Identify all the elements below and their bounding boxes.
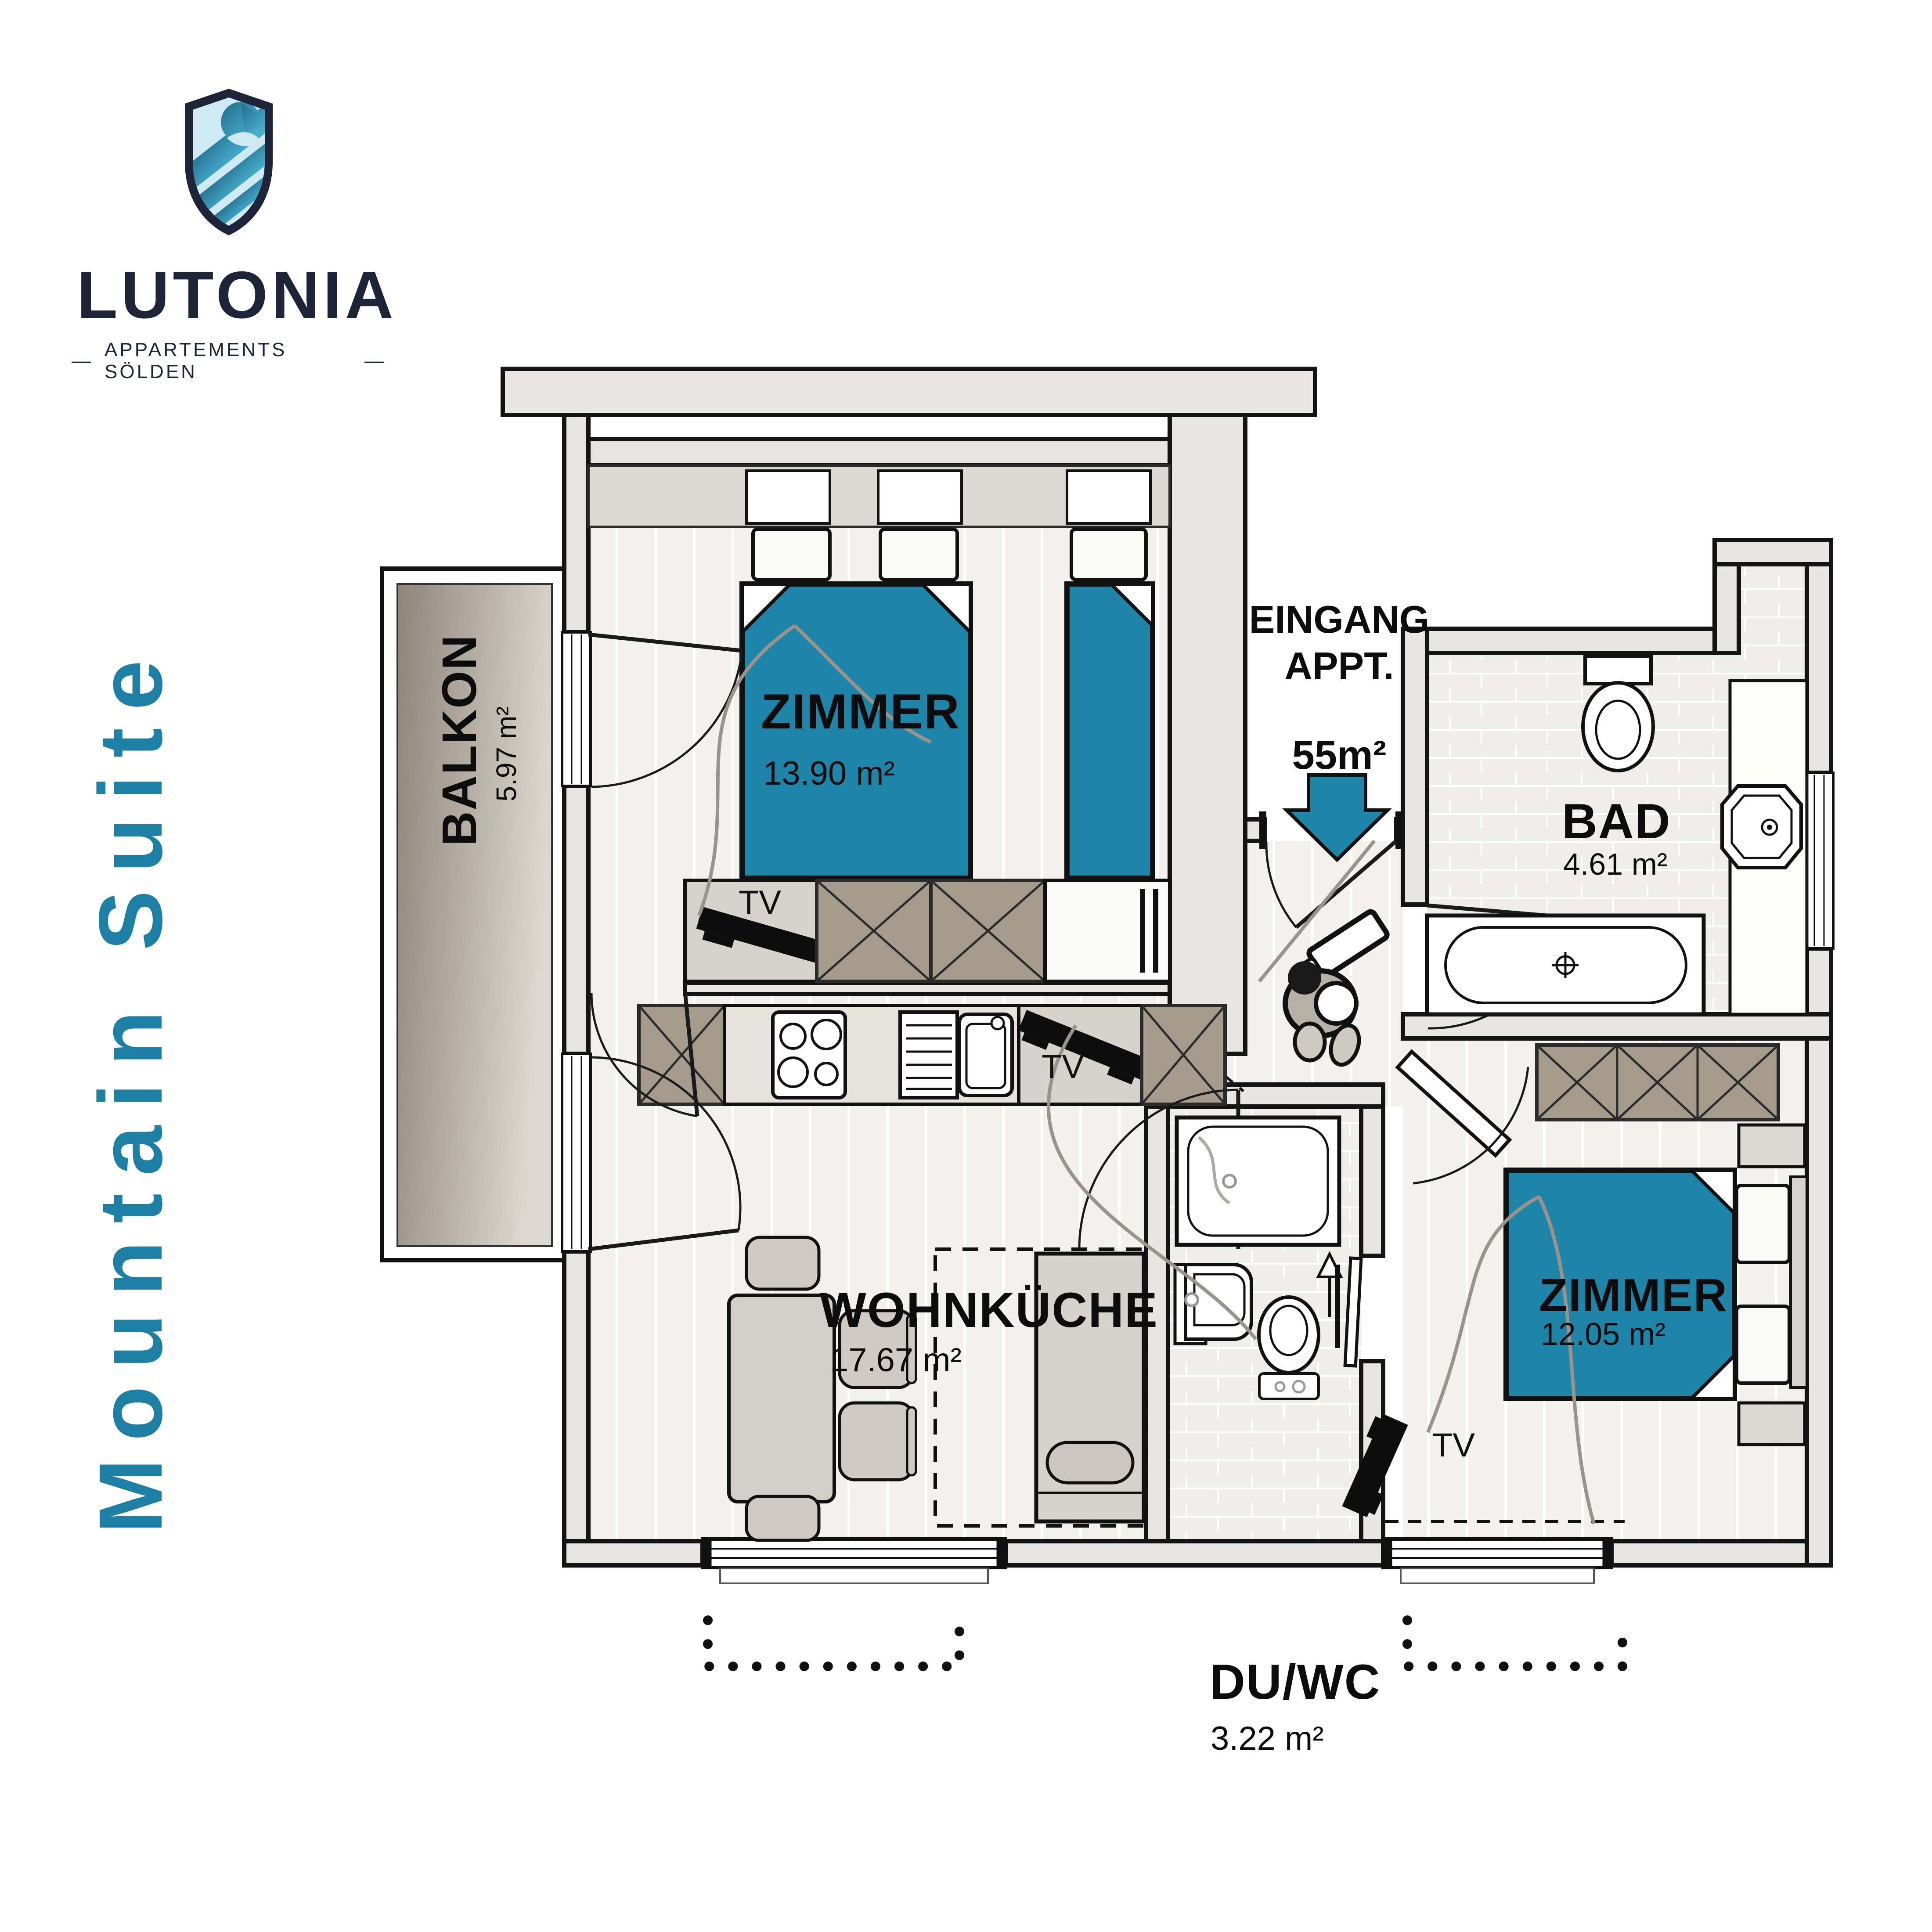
pillow: [1071, 529, 1146, 580]
total-area-label: 55m²: [1238, 732, 1440, 779]
bedroom2-area: 12.05 m²: [1541, 1318, 1665, 1352]
brand-name: LUTONIA: [77, 262, 381, 328]
shelf: [1045, 880, 1170, 981]
railing-dotted: [708, 1620, 1622, 1666]
nightstand: [1739, 1403, 1805, 1445]
bedroom1-name: ZIMMER: [761, 686, 960, 738]
tagline-dash: —: [72, 350, 93, 372]
headboard: [1791, 1177, 1807, 1388]
balcony-name: BALKON: [432, 662, 487, 846]
bedroom2-name: ZIMMER: [1539, 1271, 1728, 1320]
pillow: [1737, 1306, 1789, 1383]
bedroom2-wardrobe: [1537, 1045, 1778, 1120]
shower-wc-name: DU/WC: [1210, 1656, 1381, 1708]
chair: [746, 1496, 819, 1540]
kitchen-row: [639, 1006, 1244, 1104]
balcony-label: BALKON 5.97 m²: [432, 662, 515, 846]
nightstand: [1739, 1125, 1805, 1167]
living-name: WOHNKÜCHE: [820, 1284, 1158, 1336]
toilet-tank: [1585, 656, 1651, 684]
pillow: [880, 529, 957, 580]
brand-tagline: — APPARTEMENTS SÖLDEN —: [72, 339, 386, 383]
dining-table: [729, 1295, 834, 1502]
brand-shield-icon: [175, 86, 282, 238]
floorplan-page: LUTONIA — APPARTEMENTS SÖLDEN — Mountain…: [0, 0, 1932, 1932]
tv-label: TV: [739, 885, 781, 920]
pillow: [1737, 1186, 1789, 1262]
tagline-text: APPARTEMENTS SÖLDEN: [105, 339, 353, 383]
balcony-area: 5.97 m²: [490, 662, 523, 846]
entrance-line2: APPT.: [1238, 643, 1440, 689]
pillow: [753, 529, 830, 580]
tv-label: TV: [1042, 1049, 1084, 1085]
headboard-wall: [588, 465, 1170, 527]
entrance-label: EINGANG APPT.: [1238, 596, 1440, 689]
chair: [840, 1403, 913, 1480]
shower-wc-area: 3.22 m²: [1211, 1721, 1324, 1756]
bathroom-name: BAD: [1562, 796, 1671, 847]
single-bed: [1067, 584, 1153, 878]
tv-label: TV: [1432, 1428, 1475, 1463]
entrance-line1: EINGANG: [1238, 596, 1440, 643]
bedroom1-area: 13.90 m²: [763, 756, 895, 791]
tagline-dash: —: [364, 350, 386, 372]
living-area: 17.67 m²: [830, 1343, 962, 1378]
chair: [746, 1237, 819, 1289]
bathroom-area: 4.61 m²: [1563, 848, 1667, 881]
page-title: Mountain Suite: [79, 561, 193, 1615]
